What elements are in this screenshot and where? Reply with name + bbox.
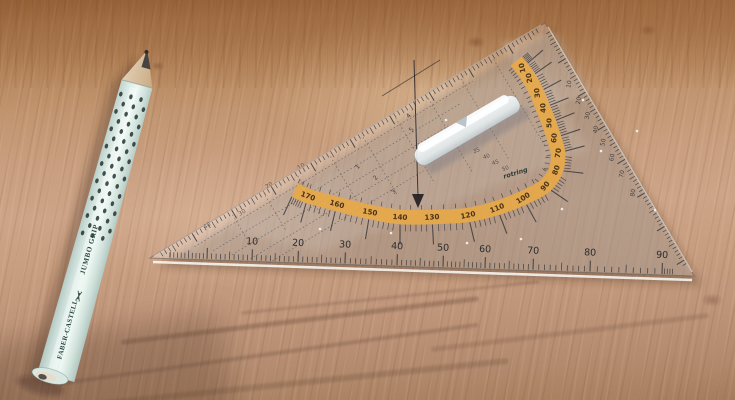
degree-label: 140 <box>392 212 408 222</box>
sparkle <box>582 99 585 102</box>
pencil-tip-point <box>145 50 149 54</box>
bottom-ruler-number: 20 <box>292 238 305 250</box>
sparkle <box>390 232 393 235</box>
sparkle <box>561 208 564 211</box>
right-edge-ruler-number: 10 <box>565 80 573 89</box>
photo-scene: 1701601501401301201101009080706050403020… <box>0 0 735 400</box>
bottom-ruler-number: 80 <box>584 247 597 259</box>
right-edge-ruler-number: 60 <box>608 153 616 162</box>
set-square: 1701601501401301201101009080706050403020… <box>150 23 701 285</box>
right-edge-ruler-number: 70 <box>618 169 626 178</box>
bottom-ruler-number: 10 <box>246 236 259 248</box>
bottom-ruler-number: 70 <box>527 245 540 257</box>
pencil: JUMBO GRIPFABER-CASTELL <box>15 49 153 400</box>
degree-label: 30 <box>532 88 542 99</box>
sparkle <box>466 242 469 245</box>
sparkle <box>445 119 448 122</box>
bottom-ruler-number: 90 <box>656 250 669 262</box>
sparkle <box>636 130 639 133</box>
right-edge-ruler-number: 40 <box>592 125 600 134</box>
scene-graphics: 1701601501401301201101009080706050403020… <box>0 0 735 400</box>
bottom-ruler-number: 40 <box>391 241 404 253</box>
degree-label: 70 <box>553 147 563 158</box>
degree-label: 20 <box>524 72 534 83</box>
right-edge-ruler-number: 80 <box>629 188 637 197</box>
bottom-ruler-number: 30 <box>339 239 352 251</box>
bottom-ruler-number: 50 <box>437 242 450 254</box>
degree-label: 40 <box>538 103 548 113</box>
right-edge-ruler-number: 30 <box>584 111 592 120</box>
sparkle <box>600 150 603 153</box>
bottom-ruler-number: 60 <box>479 244 492 256</box>
right-edge-ruler-number: 50 <box>599 138 607 147</box>
sparkle <box>520 238 523 241</box>
sparkle <box>319 228 322 231</box>
degree-label: 60 <box>549 133 559 144</box>
degree-label: 50 <box>545 118 554 128</box>
degree-label: 130 <box>424 212 440 222</box>
